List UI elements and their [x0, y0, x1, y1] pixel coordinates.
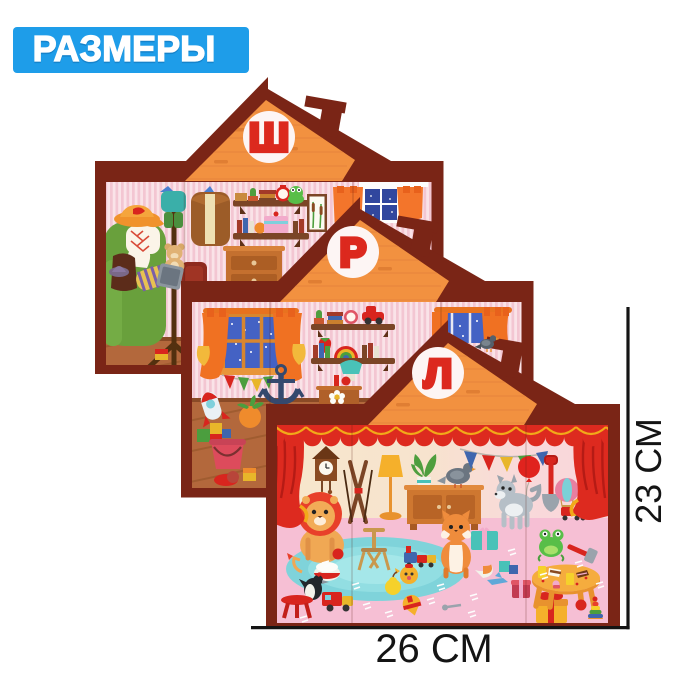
svg-text:РАЗМЕРЫ: РАЗМЕРЫ	[33, 28, 216, 69]
svg-text:Р: Р	[340, 231, 367, 275]
svg-text:23 СМ: 23 СМ	[628, 418, 669, 524]
svg-text:Ш: Ш	[249, 116, 289, 160]
svg-text:Л: Л	[424, 352, 452, 396]
svg-text:26 СМ: 26 СМ	[375, 627, 492, 671]
